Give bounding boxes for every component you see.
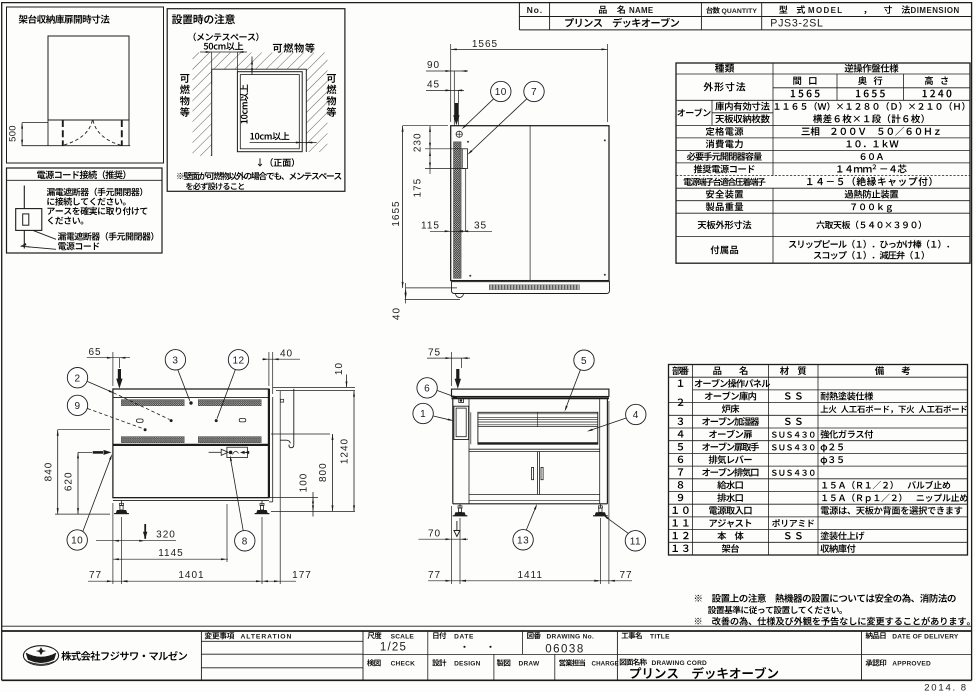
svg-text:40: 40 (280, 348, 293, 359)
svg-text:QUANTITY: QUANTITY (722, 8, 758, 15)
svg-text:DRAWING CORD: DRAWING CORD (652, 660, 708, 667)
svg-text:10: 10 (71, 536, 83, 547)
svg-text:SCALE: SCALE (391, 633, 415, 640)
svg-text:1401: 1401 (178, 570, 204, 581)
svg-text:No.: No. (527, 5, 543, 15)
svg-text:1: 1 (420, 409, 426, 420)
svg-text:DRAW: DRAW (519, 661, 541, 668)
svg-text:3: 3 (172, 355, 178, 366)
svg-text:1655: 1655 (391, 200, 402, 226)
svg-text:115: 115 (421, 221, 440, 232)
svg-text:40: 40 (392, 307, 403, 320)
svg-text:1145: 1145 (158, 548, 184, 559)
svg-text:620: 620 (64, 471, 75, 491)
svg-text:1/25: 1/25 (380, 642, 407, 654)
svg-text:840: 840 (43, 462, 54, 482)
svg-text:DATE: DATE (454, 633, 474, 640)
svg-text:11: 11 (630, 536, 641, 547)
svg-text:DATE OF DELIVERY: DATE OF DELIVERY (892, 633, 959, 640)
svg-text:12: 12 (232, 355, 244, 366)
svg-text:1565: 1565 (472, 39, 498, 50)
svg-text:CHECK: CHECK (391, 661, 415, 668)
svg-text:800: 800 (318, 462, 329, 482)
svg-text:77: 77 (89, 570, 102, 581)
svg-text:13: 13 (517, 535, 529, 546)
svg-text:70: 70 (428, 528, 441, 539)
svg-text:7: 7 (531, 87, 537, 98)
svg-text:2014. 8: 2014. 8 (924, 682, 968, 692)
svg-text:PJS3-2SL: PJS3-2SL (770, 18, 823, 30)
svg-text:MODEL: MODEL (808, 6, 844, 15)
svg-text:1240: 1240 (340, 438, 351, 464)
svg-text:6: 6 (424, 384, 430, 395)
svg-text:100: 100 (299, 473, 310, 493)
svg-text:75: 75 (428, 347, 441, 358)
svg-text:DIMENSION: DIMENSION (911, 6, 960, 15)
svg-text:5: 5 (581, 356, 587, 367)
svg-text:35: 35 (474, 221, 487, 232)
svg-text:10: 10 (334, 362, 345, 375)
svg-text:45: 45 (427, 80, 440, 91)
svg-text:NAME: NAME (629, 6, 653, 15)
svg-text:65: 65 (88, 347, 101, 358)
svg-text:500: 500 (7, 125, 18, 142)
svg-text:4: 4 (633, 410, 639, 421)
svg-text:77: 77 (428, 570, 441, 581)
svg-text:10: 10 (495, 87, 507, 98)
svg-text:APPROVED: APPROVED (892, 661, 931, 668)
svg-text:CHARGE: CHARGE (592, 661, 619, 668)
svg-text:DRAWING No.: DRAWING No. (547, 633, 595, 640)
svg-text:1411: 1411 (517, 570, 543, 581)
svg-text:9: 9 (74, 401, 80, 412)
svg-text:DESIGN: DESIGN (454, 661, 481, 668)
svg-text:ALTERATION: ALTERATION (241, 634, 293, 641)
svg-text:2: 2 (74, 373, 80, 384)
svg-text:77: 77 (619, 570, 632, 581)
svg-text:175: 175 (413, 178, 424, 198)
svg-text:320: 320 (156, 530, 176, 541)
svg-text:90: 90 (427, 60, 440, 71)
svg-text:8: 8 (242, 536, 248, 547)
svg-text:TITLE: TITLE (650, 633, 670, 640)
svg-text:177: 177 (292, 570, 312, 581)
svg-text:06038: 06038 (545, 643, 584, 655)
svg-text:230: 230 (413, 132, 424, 152)
